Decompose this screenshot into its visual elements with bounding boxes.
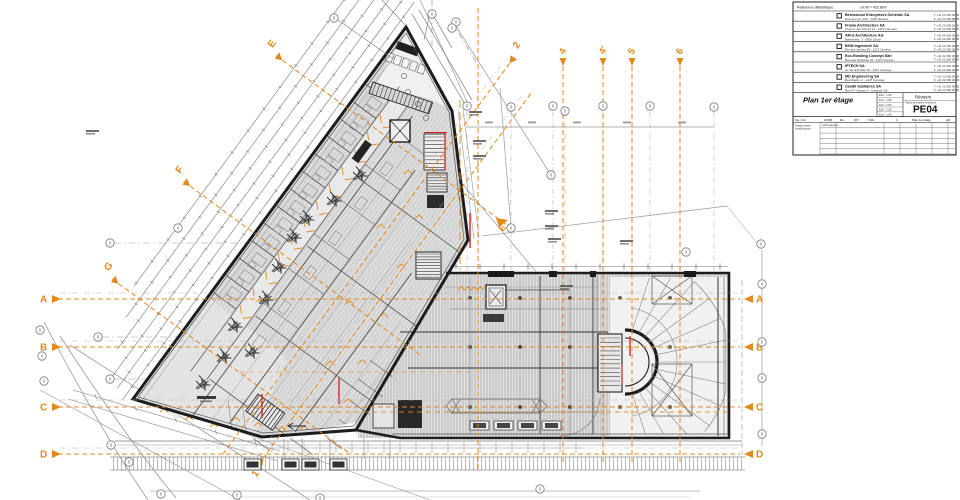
svg-text:Ech.: 1:50: Ech.: 1:50: [879, 98, 892, 102]
svg-text:Rue Baylon 2 - 1227 Carouge: Rue Baylon 2 - 1227 Carouge: [845, 78, 885, 82]
svg-text:Bahnhofstr. 3 - 8000 Zürich: Bahnhofstr. 3 - 8000 Zürich: [845, 37, 882, 41]
svg-text:Ing. civil: Ing. civil: [795, 118, 806, 122]
svg-text:Ech.: 1:50: Ech.: 1:50: [879, 93, 892, 97]
svg-text:007: 007: [854, 118, 859, 122]
svg-text:Ech.: 1:50: Ech.: 1:50: [879, 108, 892, 112]
svg-text:±0.00 = 432.80m: ±0.00 = 432.80m: [860, 6, 887, 10]
svg-text:F +41 22 000 00 00: F +41 22 000 00 00: [934, 47, 960, 51]
svg-text:C: C: [40, 403, 47, 414]
svg-text:THG: THG: [868, 118, 875, 122]
svg-text:Av. de la Praille 45 - 1227 Ca: Av. de la Praille 45 - 1227 Carouge: [845, 68, 892, 72]
svg-text:Révision: Révision: [915, 95, 932, 100]
svg-text:D: D: [40, 450, 47, 461]
svg-text:A: A: [756, 295, 763, 306]
svg-text:F +41 22 000 00 00: F +41 22 000 00 00: [934, 88, 960, 92]
svg-text:F +41 22 000 00 00: F +41 22 000 00 00: [934, 68, 960, 72]
svg-text:Rte des Jeunes 59 - 1227 Genèv: Rte des Jeunes 59 - 1227 Genève: [845, 48, 891, 52]
svg-text:Ech.: 1:50: Ech.: 1:50: [879, 103, 892, 107]
svg-text:Référence altimétrique :: Référence altimétrique :: [797, 6, 835, 10]
svg-text:Re: Re: [840, 118, 844, 122]
svg-text:Plan 1er étage: Plan 1er étage: [912, 118, 931, 122]
svg-text:F +41 22 000 00 00: F +41 22 000 00 00: [934, 78, 960, 82]
svg-text:A: A: [40, 295, 47, 306]
svg-text:pdf: pdf: [946, 118, 950, 122]
svg-text:C: C: [756, 403, 763, 414]
svg-text:F +41 22 000 00 00: F +41 22 000 00 00: [934, 58, 960, 62]
svg-text:A Remarques: A Remarques: [822, 123, 839, 127]
svg-text:Plan 1er étage: Plan 1er étage: [803, 96, 853, 105]
svg-text:modifications: modifications: [795, 127, 811, 131]
svg-text:10348: 10348: [824, 118, 832, 122]
svg-text:Rte A-F. Dubois 2 - Carouge GE: Rte A-F. Dubois 2 - Carouge GE: [845, 88, 888, 92]
svg-text:F +41 22 000 00 00: F +41 22 000 00 00: [934, 37, 960, 41]
svg-text:PE04: PE04: [913, 105, 938, 116]
svg-text:Rue des Noirettes 32 - 1227 Ge: Rue des Noirettes 32 - 1227 Genève: [845, 58, 894, 62]
svg-text:Ech.: 1:50: Ech.: 1:50: [879, 112, 892, 116]
svg-text:F +41 22 000 00 00: F +41 22 000 00 00: [934, 17, 960, 21]
svg-text:F +41 22 000 00 00: F +41 22 000 00 00: [934, 27, 960, 31]
svg-text:Rue de Lyon 105 - 1203 Genève: Rue de Lyon 105 - 1203 Genève: [845, 17, 889, 21]
svg-text:D: D: [756, 450, 763, 461]
svg-text:Chemin des Usines 12 - 1227 Ca: Chemin des Usines 12 - 1227 Carouge: [845, 27, 897, 31]
